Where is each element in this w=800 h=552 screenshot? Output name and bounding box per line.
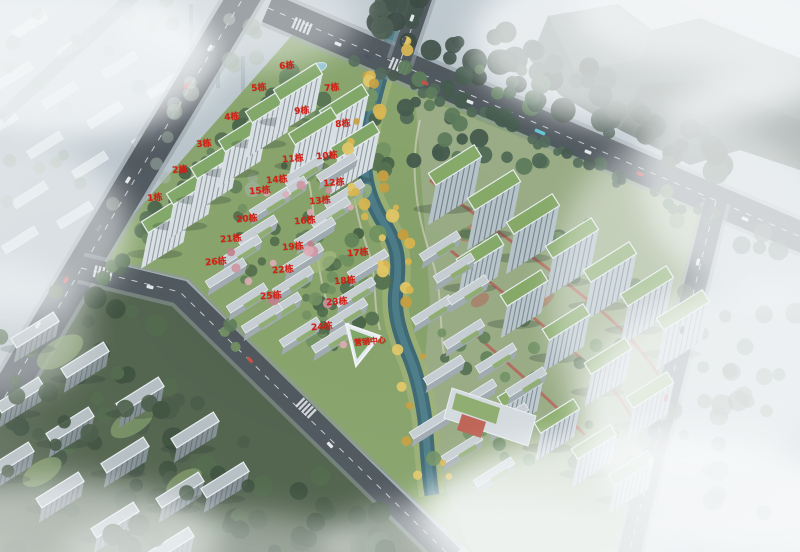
- scene-svg: [0, 0, 800, 552]
- color-cast: [0, 0, 800, 552]
- aerial-rendering: 1栋2栋3栋4栋5栋6栋7栋8栋9栋10栋11栋12栋13栋14栋15栋16栋1…: [0, 0, 800, 552]
